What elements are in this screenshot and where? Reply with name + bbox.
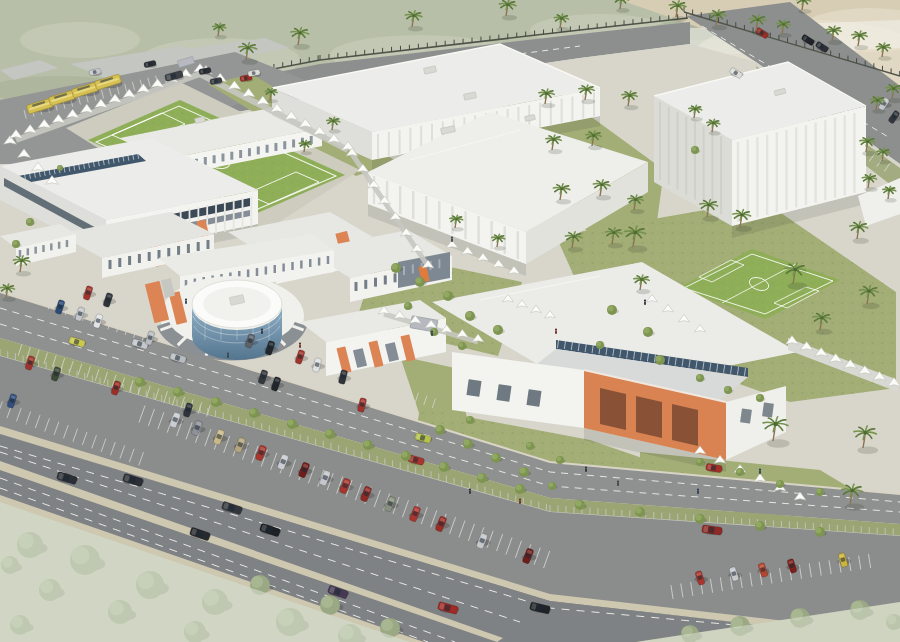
rendering-canvas bbox=[0, 0, 900, 642]
scene-layers bbox=[0, 0, 900, 642]
aerial-campus-rendering bbox=[0, 0, 900, 642]
